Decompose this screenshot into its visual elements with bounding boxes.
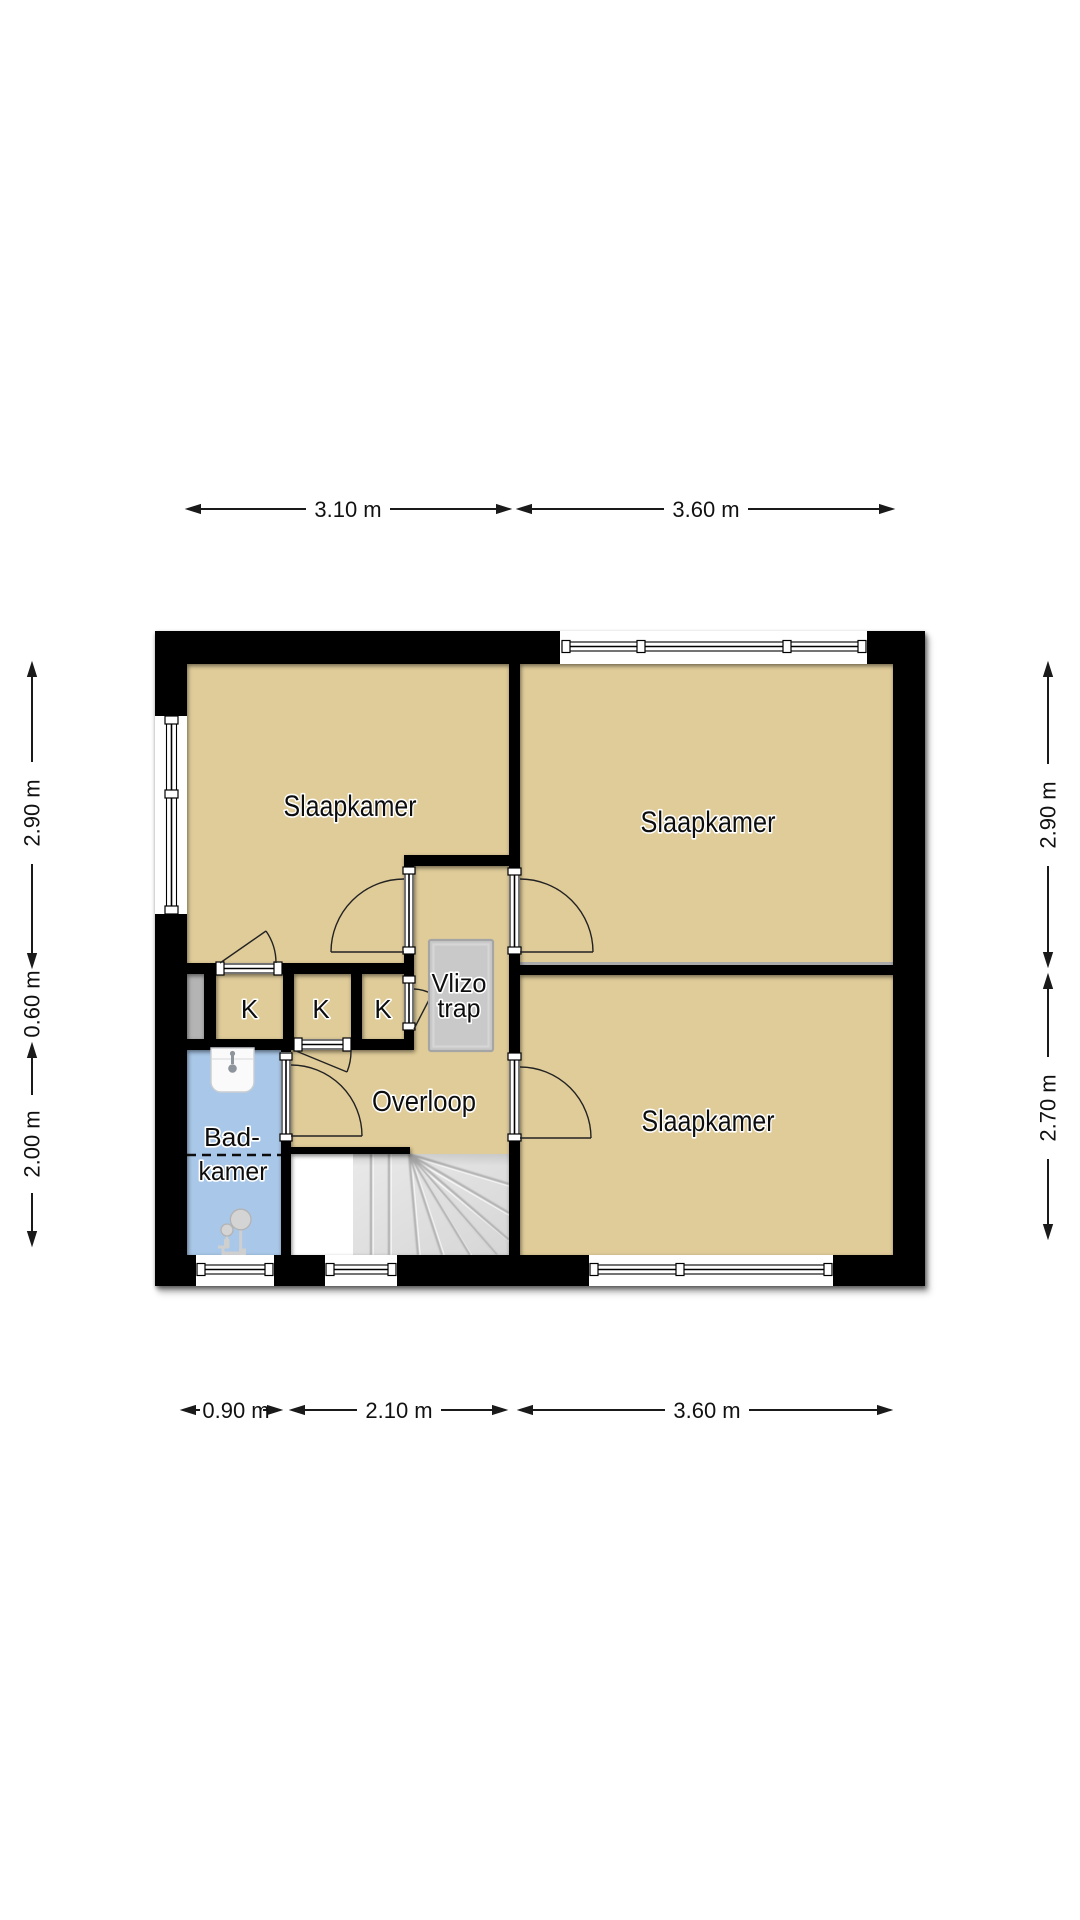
svg-text:2.00 m: 2.00 m (20, 1110, 45, 1177)
svg-text:K: K (312, 994, 330, 1024)
svg-text:3.10 m: 3.10 m (314, 497, 381, 522)
svg-text:Overloop: Overloop (372, 1086, 476, 1118)
svg-text:2.90 m: 2.90 m (1036, 781, 1061, 848)
svg-text:2.70 m: 2.70 m (1036, 1074, 1061, 1141)
svg-text:3.60 m: 3.60 m (672, 497, 739, 522)
svg-text:kamer: kamer (199, 1156, 268, 1186)
svg-text:0.60 m: 0.60 m (20, 970, 45, 1037)
svg-text:Slaapkamer: Slaapkamer (642, 1105, 775, 1138)
svg-text:2.90 m: 2.90 m (20, 779, 45, 846)
svg-text:0.90 m: 0.90 m (202, 1398, 269, 1423)
svg-text:Slaapkamer: Slaapkamer (641, 806, 776, 839)
svg-text:Slaapkamer: Slaapkamer (284, 790, 417, 823)
svg-text:trap: trap (438, 993, 481, 1023)
svg-text:K: K (241, 994, 259, 1024)
svg-text:K: K (374, 994, 392, 1024)
svg-text:2.10 m: 2.10 m (365, 1398, 432, 1423)
svg-text:Bad-: Bad- (204, 1122, 260, 1152)
svg-text:3.60 m: 3.60 m (673, 1398, 740, 1423)
